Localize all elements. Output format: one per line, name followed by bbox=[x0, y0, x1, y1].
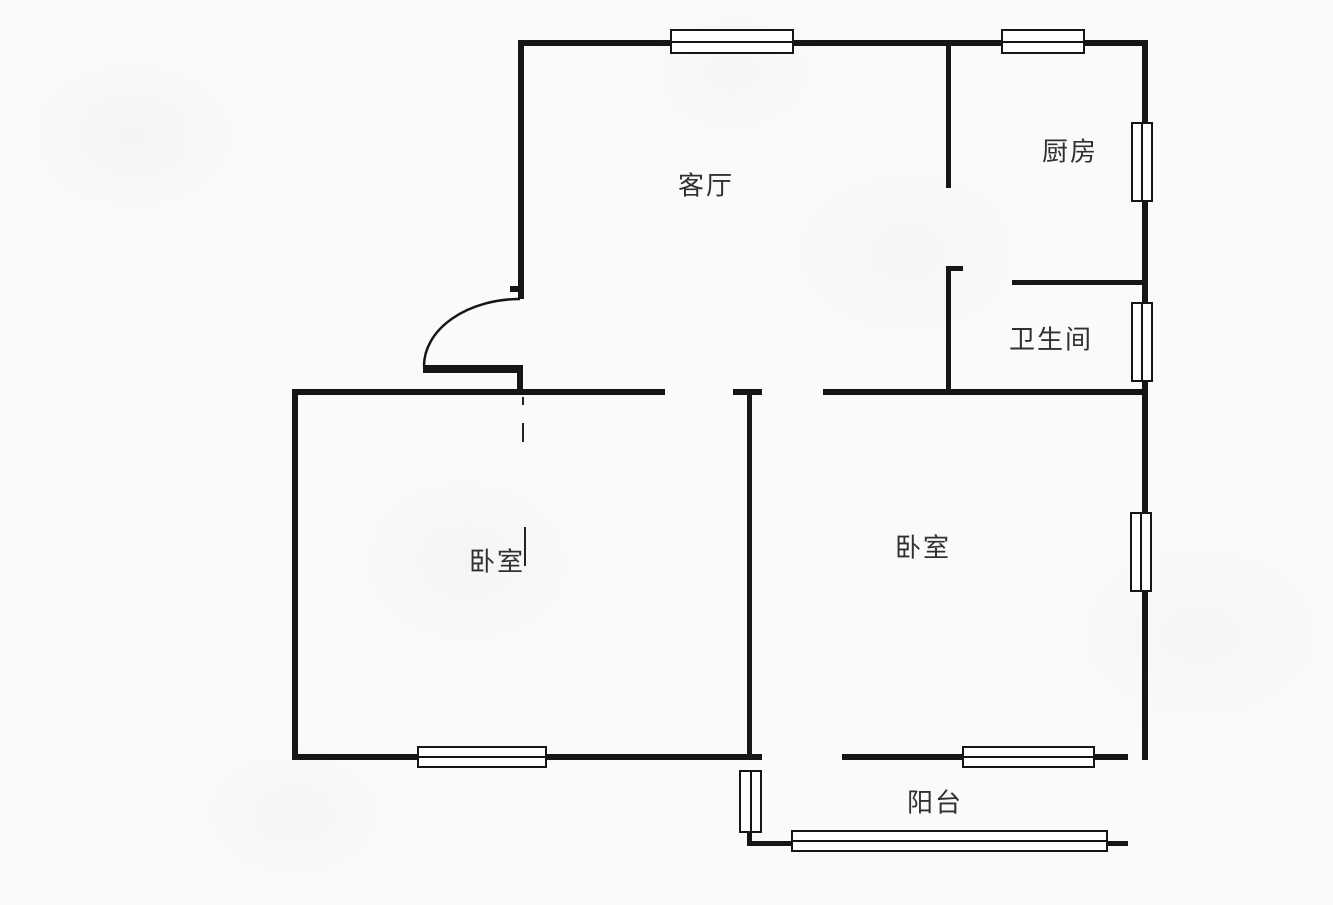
room-label: 卧室 bbox=[895, 528, 951, 565]
dashed-opening-mark bbox=[522, 423, 524, 442]
wall-segment bbox=[842, 754, 963, 760]
wall-segment bbox=[518, 40, 524, 299]
wall-segment bbox=[747, 392, 752, 758]
wall-segment bbox=[546, 754, 762, 760]
room-label: 阳台 bbox=[907, 783, 963, 820]
room-label: 卧室 bbox=[469, 542, 525, 579]
wall-segment bbox=[1094, 754, 1128, 760]
wall-segment bbox=[1012, 280, 1145, 285]
window-symbol bbox=[962, 746, 1095, 768]
wall-segment bbox=[1142, 380, 1148, 514]
window-symbol bbox=[1131, 122, 1153, 202]
window-pane-line bbox=[750, 772, 752, 831]
window-pane-line bbox=[419, 756, 545, 758]
wall-segment bbox=[1107, 841, 1128, 846]
window-symbol bbox=[1001, 29, 1085, 54]
floor-plan: 客厅厨房卫生间卧室卧室阳台 bbox=[0, 0, 1333, 905]
wall-segment bbox=[517, 365, 523, 393]
wall-segment bbox=[518, 40, 671, 46]
room-label: 客厅 bbox=[678, 166, 734, 203]
wall-segment bbox=[510, 286, 519, 292]
wall-segment bbox=[1142, 200, 1148, 304]
room-label: 厨房 bbox=[1042, 132, 1098, 169]
window-symbol bbox=[417, 746, 547, 768]
window-pane-line bbox=[1003, 41, 1083, 43]
window-pane-line bbox=[1140, 514, 1142, 590]
wall-segment bbox=[823, 389, 1145, 395]
window-pane-line bbox=[1141, 124, 1143, 200]
window-pane-line bbox=[793, 840, 1106, 842]
wall-segment bbox=[423, 365, 519, 373]
window-pane-line bbox=[672, 41, 792, 43]
wall-segment bbox=[946, 266, 963, 271]
window-symbol bbox=[1131, 302, 1153, 382]
wall-segment bbox=[292, 389, 298, 760]
wall-segment bbox=[793, 40, 1002, 46]
wall-segment bbox=[1084, 40, 1148, 46]
window-symbol bbox=[1130, 512, 1152, 592]
wall-segment bbox=[1142, 590, 1148, 760]
wall-segment bbox=[946, 266, 951, 392]
dashed-opening-mark bbox=[522, 397, 524, 405]
wall-segment bbox=[1142, 40, 1148, 124]
window-symbol bbox=[670, 29, 794, 54]
wall-segment bbox=[292, 389, 665, 395]
wall-segment bbox=[747, 841, 792, 846]
room-label: 卫生间 bbox=[1009, 320, 1093, 357]
window-pane-line bbox=[964, 756, 1093, 758]
window-symbol bbox=[739, 770, 762, 833]
window-symbol bbox=[791, 830, 1108, 852]
wall-segment bbox=[946, 43, 951, 188]
window-pane-line bbox=[1141, 304, 1143, 380]
entry-door-swing-arc bbox=[424, 299, 520, 366]
wall-segment bbox=[292, 754, 418, 760]
